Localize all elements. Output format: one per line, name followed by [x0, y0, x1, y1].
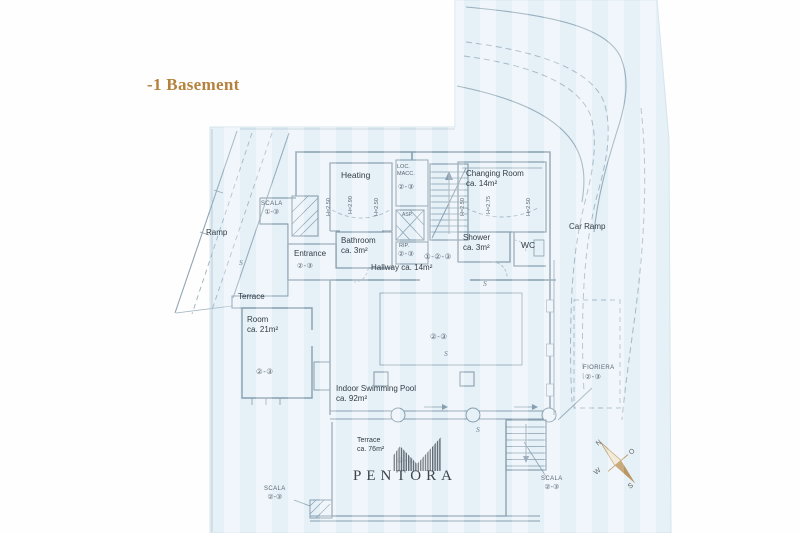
loc-macc-line1: LOC. [397, 164, 415, 171]
room-label-asp: ASP. [402, 212, 413, 218]
section-marker: S [239, 258, 243, 267]
level-marker-hallway: ①-②-③ [424, 252, 452, 261]
loc-macc-line2: MACC. [397, 171, 415, 178]
area-label-terrace-lower: Terrace ca. 76m² [357, 437, 384, 455]
terrace-lower-name: Terrace [357, 437, 384, 446]
pool-name: Indoor Swimming Pool [336, 384, 416, 394]
room-area: ca. 21m² [247, 325, 278, 335]
area-label-car-ramp: Car Ramp [569, 222, 605, 232]
room-label-room: Room ca. 21m² [247, 315, 278, 335]
stair-label-scala-nw: SCALA ①-③ [261, 201, 283, 217]
brand-wordmark: PENTORA [349, 468, 461, 485]
scala-nw-marker: ①-③ [261, 209, 283, 218]
section-marker: S [476, 425, 480, 434]
terrace-lower-area: ca. 76m² [357, 446, 384, 455]
stair-label-scala-se: SCALA ②-③ [541, 476, 563, 492]
height-label-changing-mid: H=2.75 [486, 180, 494, 214]
page-title: -1 Basement [147, 75, 240, 95]
room-label-loc-macc: LOC. MACC. [397, 164, 415, 178]
room-label-pool: Indoor Swimming Pool ca. 92m² [336, 384, 416, 404]
level-marker-rip: ②-③ [398, 251, 414, 260]
scala-se-name: SCALA [541, 476, 563, 484]
bathroom-area: ca. 3m² [341, 246, 376, 256]
level-marker-terrace-lower: ②-③ [397, 456, 414, 465]
scala-nw-name: SCALA [261, 201, 283, 209]
bathroom-name: Bathroom [341, 236, 376, 246]
room-label-wc: WC [521, 240, 535, 251]
section-marker: S [483, 279, 487, 288]
height-label-changing-left: H=2.50 [460, 182, 468, 216]
height-label-changing-right: H=2.50 [526, 182, 534, 216]
area-label-ramp: Ramp [206, 228, 227, 238]
pool-area: ca. 92m² [336, 394, 416, 404]
room-label-shower: Shower ca. 3m² [463, 233, 490, 253]
room-label-entrance: Entrance [294, 249, 326, 259]
room-label-rip: RIP. [399, 243, 409, 250]
area-label-terrace-upper: Terrace [238, 292, 265, 302]
height-label-heating-right: H=2.50 [374, 182, 382, 216]
section-marker: S [444, 349, 448, 358]
room-label-changing: Changing Room ca. 14m² [466, 169, 524, 189]
height-label-heating-mid: H=2.90 [348, 180, 356, 214]
changing-area: ca. 14m² [466, 179, 524, 189]
level-marker-loc-macc: ②-③ [398, 184, 414, 193]
stair-label-scala-sw: SCALA ②-③ [264, 486, 286, 502]
level-marker-room: ②-③ [256, 367, 273, 376]
level-marker-fioriera: ②-③ [585, 374, 601, 383]
room-label-hallway: Hallway ca. 14m² [371, 263, 432, 273]
shower-name: Shower [463, 233, 490, 243]
floorplan-page: N O W S -1 Basement Heating LOC. MACC. ②… [0, 0, 800, 533]
level-marker-entrance: ②-③ [297, 263, 313, 272]
room-label-bathroom: Bathroom ca. 3m² [341, 236, 376, 256]
scala-sw-name: SCALA [264, 486, 286, 494]
scala-se-marker: ②-③ [541, 484, 563, 493]
room-name: Room [247, 315, 278, 325]
level-marker-pool: ②-③ [430, 332, 447, 341]
shower-area: ca. 3m² [463, 243, 490, 253]
changing-name: Changing Room [466, 169, 524, 179]
area-label-fioriera: FIORIERA [583, 365, 615, 373]
scala-sw-marker: ②-③ [264, 494, 286, 503]
height-label-heating-left: H=2.50 [326, 182, 334, 216]
